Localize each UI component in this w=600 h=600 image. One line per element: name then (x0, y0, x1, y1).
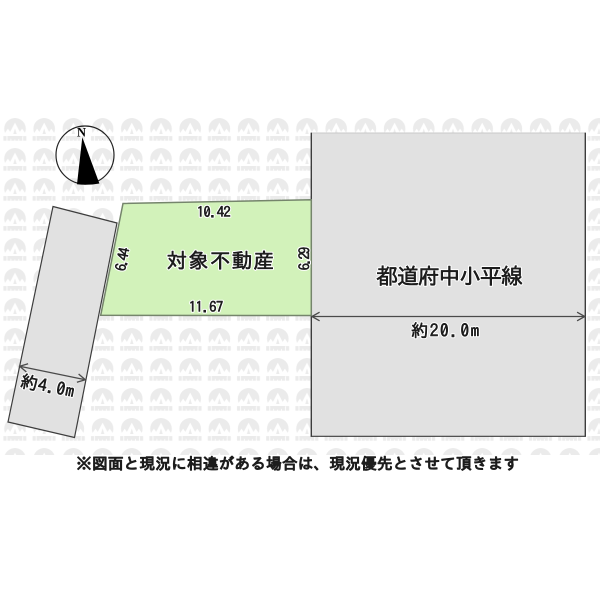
svg-text:N: N (77, 126, 86, 140)
